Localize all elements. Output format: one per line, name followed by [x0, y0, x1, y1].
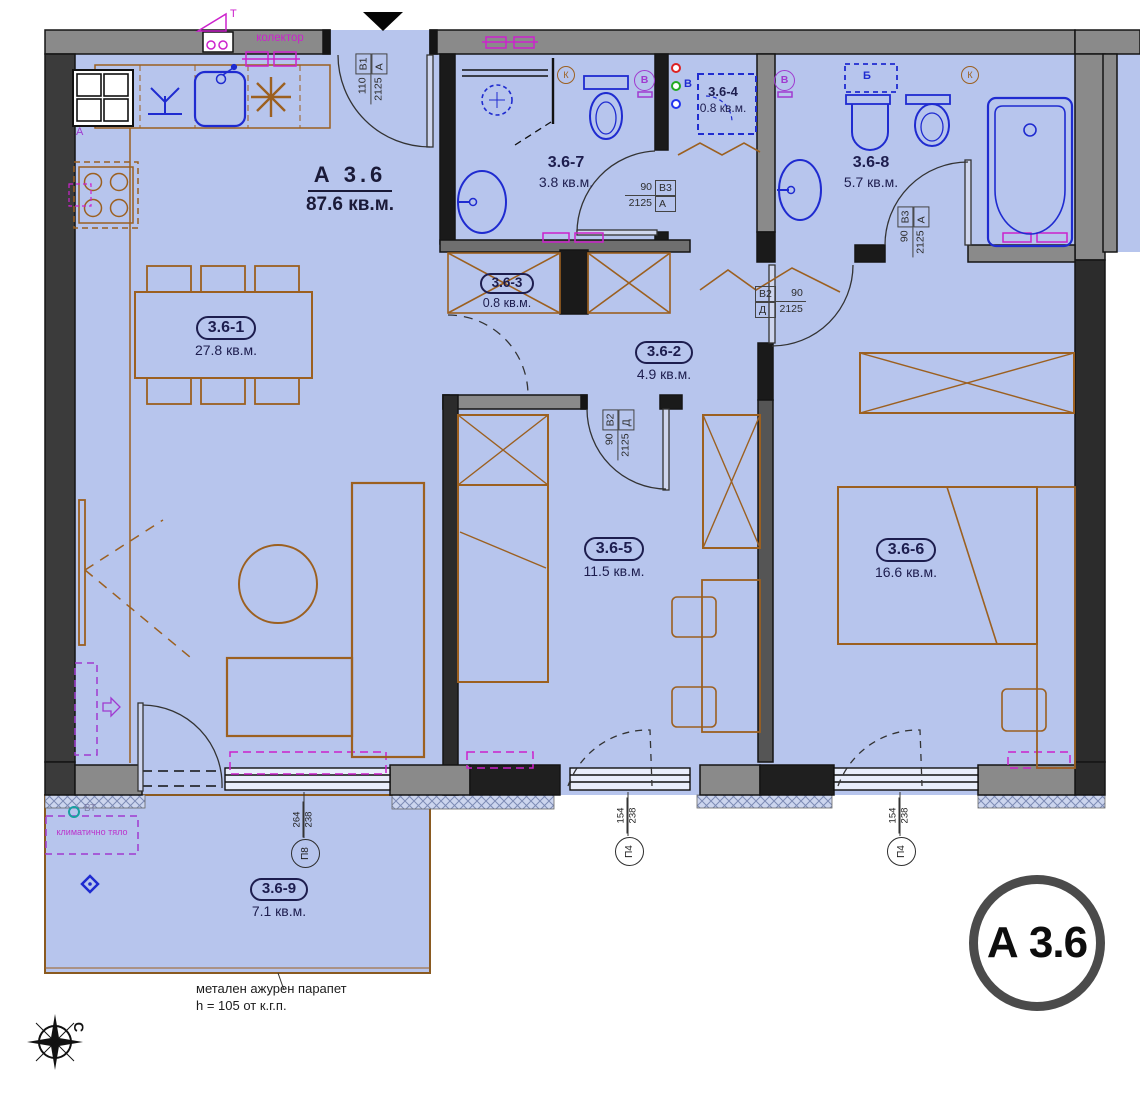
k-circle-bath7: К	[557, 66, 575, 84]
room-id: 3.6-7	[548, 153, 584, 172]
k-circle-bath8: К	[961, 66, 979, 84]
room-label-368: 3.6-8 5.7 кв.м.	[811, 153, 931, 190]
room-area: 11.5 кв.м.	[583, 563, 644, 579]
balcony-door-slab	[138, 703, 143, 791]
room-id: 3.6-1	[196, 316, 256, 340]
kolektor-label: колектор	[240, 32, 320, 44]
entrance-door-slab	[427, 55, 433, 147]
window-tag-p4b: П4	[887, 837, 916, 866]
apartment-area: 87.6 кв.м.	[306, 194, 394, 216]
cooktop-star-icon	[251, 77, 291, 117]
vt-label: ВТ	[84, 803, 96, 814]
door-tag-bedroom5: 90 В2 2125 Д	[602, 410, 634, 461]
room-area: 27.8 кв.м.	[195, 342, 257, 358]
window-size-p8: 264 238	[292, 802, 315, 838]
boiler-b-label: Б	[863, 70, 871, 82]
window-tag-p8: П8	[291, 839, 320, 868]
sheet-badge: А 3.6	[969, 875, 1105, 1011]
room-label-362: 3.6-2 4.9 кв.м.	[604, 341, 724, 382]
room-area: 4.9 кв.м.	[637, 366, 691, 382]
room-id: 3.6-2	[635, 341, 693, 364]
door-tag-bath8: 90 В3 2125 А	[897, 207, 929, 258]
room-area: 5.7 кв.м.	[844, 174, 898, 190]
bath8-door-slab	[965, 160, 971, 245]
t-flag-label: Т	[230, 8, 237, 20]
room-id: 3.6-9	[250, 878, 308, 901]
appliance-block	[73, 70, 133, 126]
room-label-364: 3.6-4 0.8 кв.м.	[663, 84, 783, 115]
room-id: 3.6-4	[708, 84, 738, 100]
v-circle-bath8: В	[774, 70, 795, 91]
breaker-v-label: В	[684, 78, 692, 90]
room-area: 0.8 кв.м.	[483, 296, 532, 310]
parapet-note-line1: метален ажурен парапет	[196, 981, 347, 996]
apartment-code: А 3.6	[308, 162, 393, 192]
klimatichno-label: климатично тяло	[46, 827, 138, 837]
entrance-triangle-icon	[363, 12, 403, 31]
apartment-title: А 3.6 87.6 кв.м.	[300, 162, 400, 216]
bedroom5-door-slab	[663, 409, 669, 490]
door-tag-bedroom6: В2 90 Д 2125	[755, 286, 806, 318]
door-tag-entrance: 110 В1 2125 А	[355, 54, 387, 105]
window-p4a	[570, 768, 690, 790]
room-label-361: 3.6-1 27.8 кв.м.	[166, 316, 286, 358]
room-id: 3.6-8	[853, 153, 889, 172]
a-kitchen-label: А	[76, 126, 83, 138]
room-label-369: 3.6-9 7.1 кв.м.	[219, 878, 339, 919]
window-size-p4a: 154 238	[616, 798, 639, 834]
room-area: 0.8 кв.м.	[700, 102, 747, 116]
room-label-367: 3.6-7 3.8 кв.м.	[506, 153, 626, 190]
room-id: 3.6-6	[876, 538, 936, 562]
window-p8	[225, 768, 390, 790]
window-tag-p4a: П4	[615, 837, 644, 866]
window-size-p4b: 154 238	[888, 798, 911, 834]
t-flag-icon	[198, 14, 226, 31]
compass-north-label: С	[71, 1022, 87, 1032]
room-id: 3.6-3	[480, 273, 535, 294]
room-area: 3.8 кв.м.	[539, 174, 593, 190]
room-id: 3.6-5	[584, 537, 644, 561]
room-area: 16.6 кв.м.	[875, 564, 937, 580]
room-area: 7.1 кв.м.	[252, 903, 306, 919]
room-label-366: 3.6-6 16.6 кв.м.	[846, 538, 966, 580]
sheet-badge-label: А 3.6	[987, 918, 1087, 968]
floor-plan-sheet: А 3.6 87.6 кв.м. 3.6-1 27.8 кв.м. 3.6-2 …	[0, 0, 1140, 1095]
parapet-note-line2: h = 105 от к.г.п.	[196, 998, 287, 1013]
room-label-363: 3.6-3 0.8 кв.м.	[447, 273, 567, 310]
room-label-365: 3.6-5 11.5 кв.м.	[554, 537, 674, 579]
door-tag-bath7: 90 В3 2125 А	[625, 180, 676, 212]
window-p4b	[834, 768, 978, 790]
v-circle-bath7: В	[634, 70, 655, 91]
